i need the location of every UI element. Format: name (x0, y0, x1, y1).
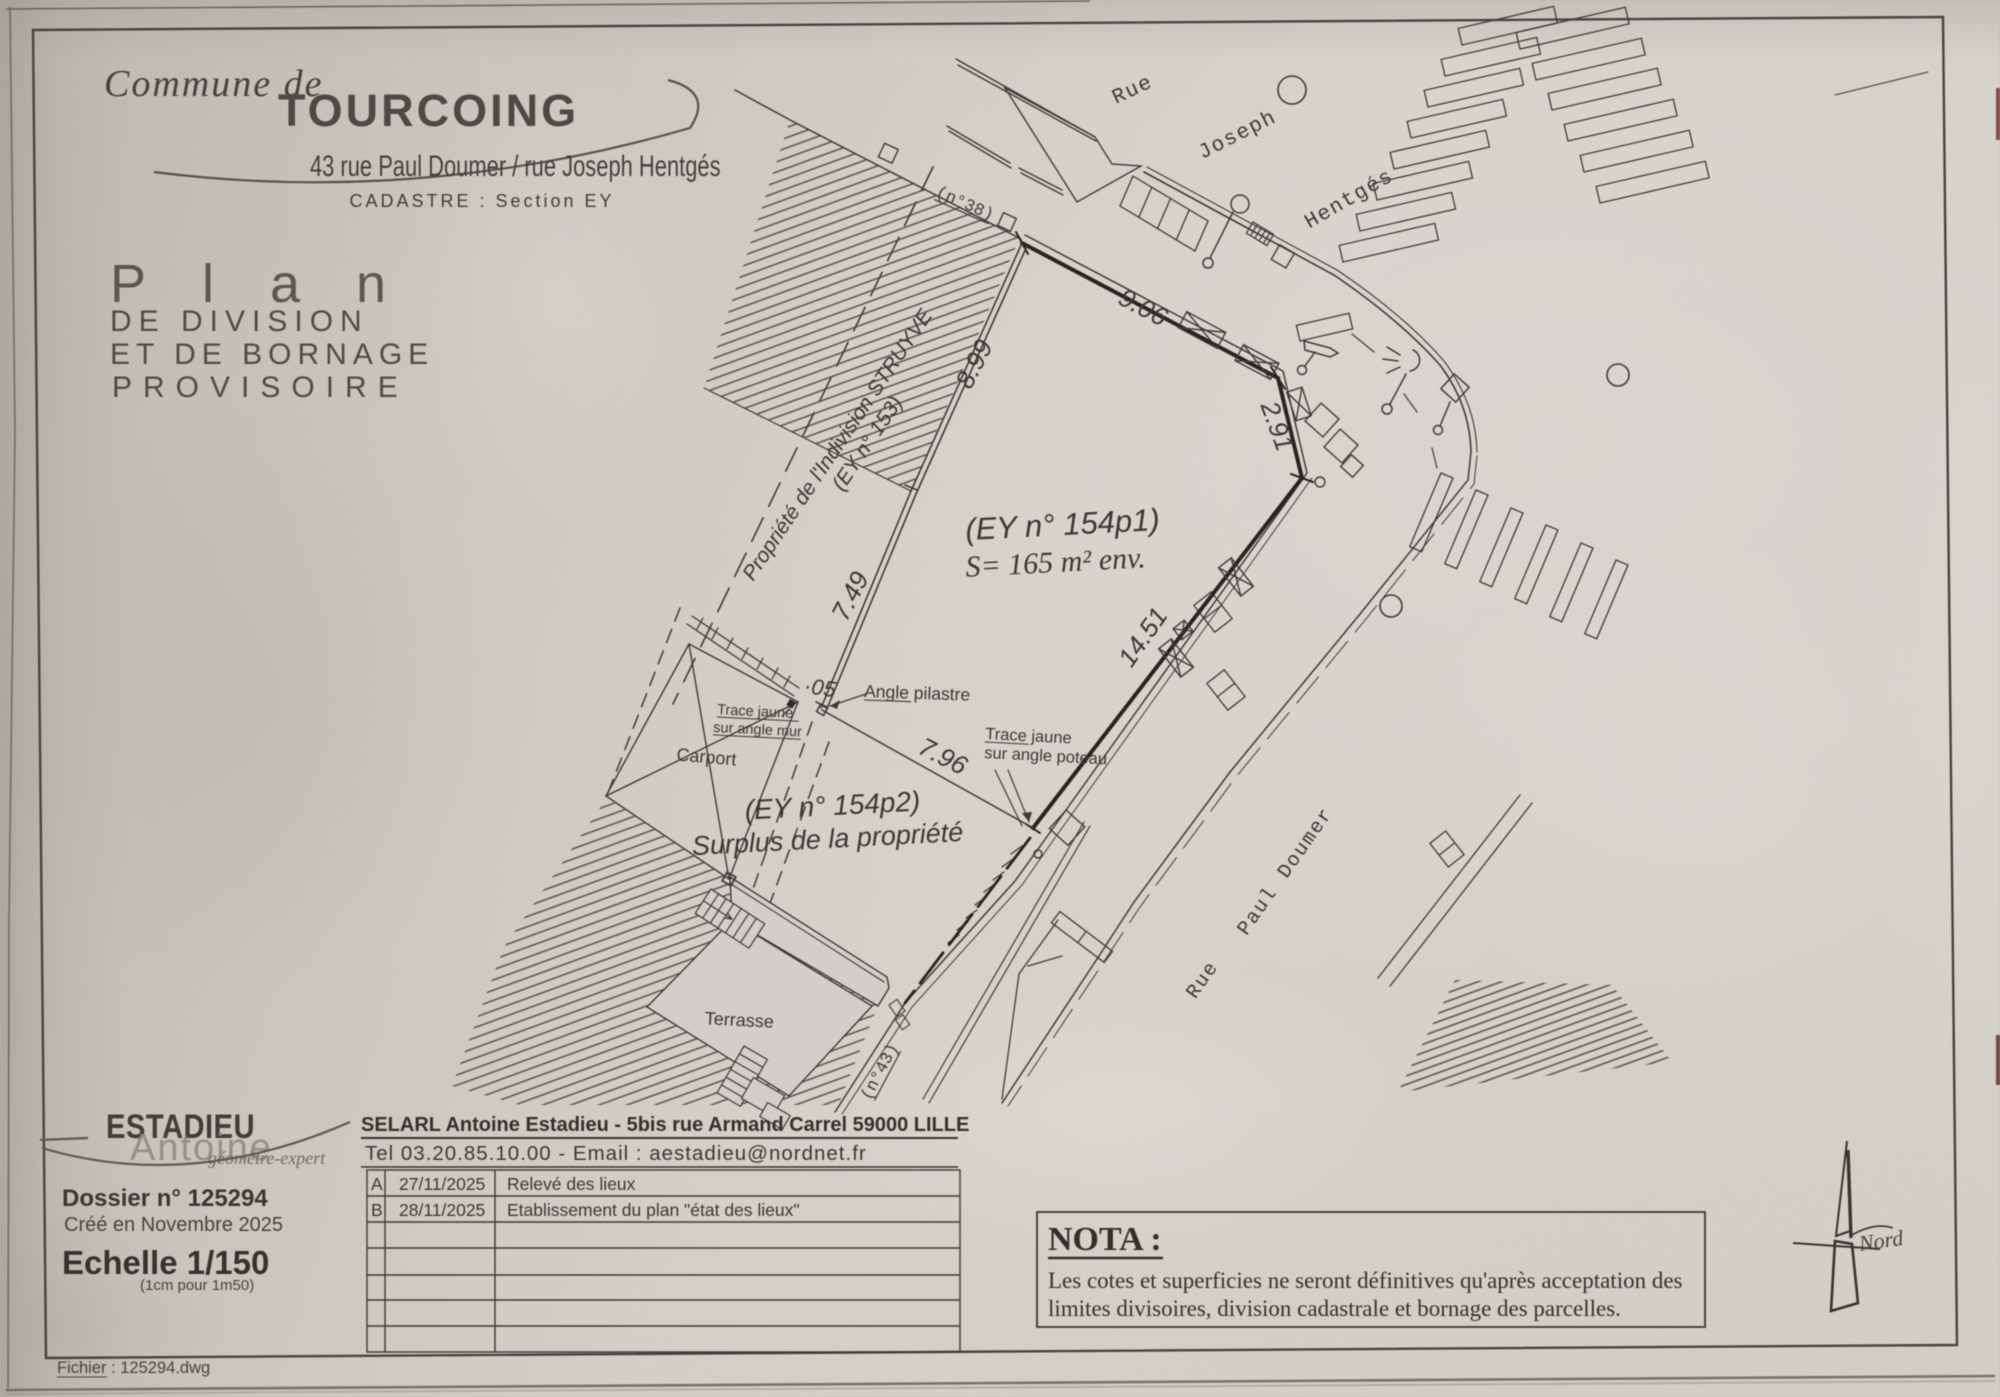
svg-text:NOTA :: NOTA : (1048, 1221, 1162, 1258)
svg-text:Tel 03.20.85.10.00 - Email : a: Tel 03.20.85.10.00 - Email : aestadieu@n… (365, 1142, 867, 1165)
svg-text:(1cm pour 1m50): (1cm pour 1m50) (140, 1277, 254, 1294)
svg-text:Les cotes et superficies ne se: Les cotes et superficies ne seront défin… (1048, 1268, 1683, 1293)
svg-text:Etablissement du plan "état de: Etablissement du plan "état des lieux" (507, 1200, 800, 1220)
svg-text:PROVISOIRE: PROVISOIRE (112, 371, 409, 404)
svg-text:27/11/2025: 27/11/2025 (399, 1174, 485, 1194)
svg-text:SELARL Antoine Estadieu - 5bis: SELARL Antoine Estadieu - 5bis rue Arman… (361, 1114, 969, 1136)
svg-text:ET DE BORNAGE: ET DE BORNAGE (110, 338, 434, 371)
svg-text:Echelle 1/150: Echelle 1/150 (62, 1244, 269, 1281)
svg-text:A: A (371, 1174, 383, 1194)
svg-text:Terrasse: Terrasse (704, 1008, 774, 1032)
svg-text:DE DIVISION: DE DIVISION (110, 305, 369, 338)
svg-text:28/11/2025: 28/11/2025 (399, 1200, 485, 1220)
svg-text:CADASTRE : Section EY: CADASTRE : Section EY (349, 191, 614, 211)
svg-text:Créé en Novembre 2025: Créé en Novembre 2025 (64, 1214, 283, 1236)
svg-text:limites divisoires, division c: limites divisoires, division cadastrale … (1048, 1296, 1621, 1321)
svg-text:43 rue Paul Doumer / rue Josep: 43 rue Paul Doumer / rue Joseph Hentgés (310, 149, 721, 183)
svg-text:Angle pilastre: Angle pilastre (864, 681, 971, 705)
svg-text:Relevé des lieux: Relevé des lieux (507, 1174, 636, 1194)
svg-text:Dossier n° 125294: Dossier n° 125294 (62, 1185, 268, 1212)
svg-text:·05: ·05 (803, 673, 839, 702)
svg-text:TOURCOING: TOURCOING (278, 85, 579, 136)
svg-text:Fichier : 125294.dwg: Fichier : 125294.dwg (57, 1359, 210, 1377)
svg-text:B: B (371, 1200, 383, 1220)
